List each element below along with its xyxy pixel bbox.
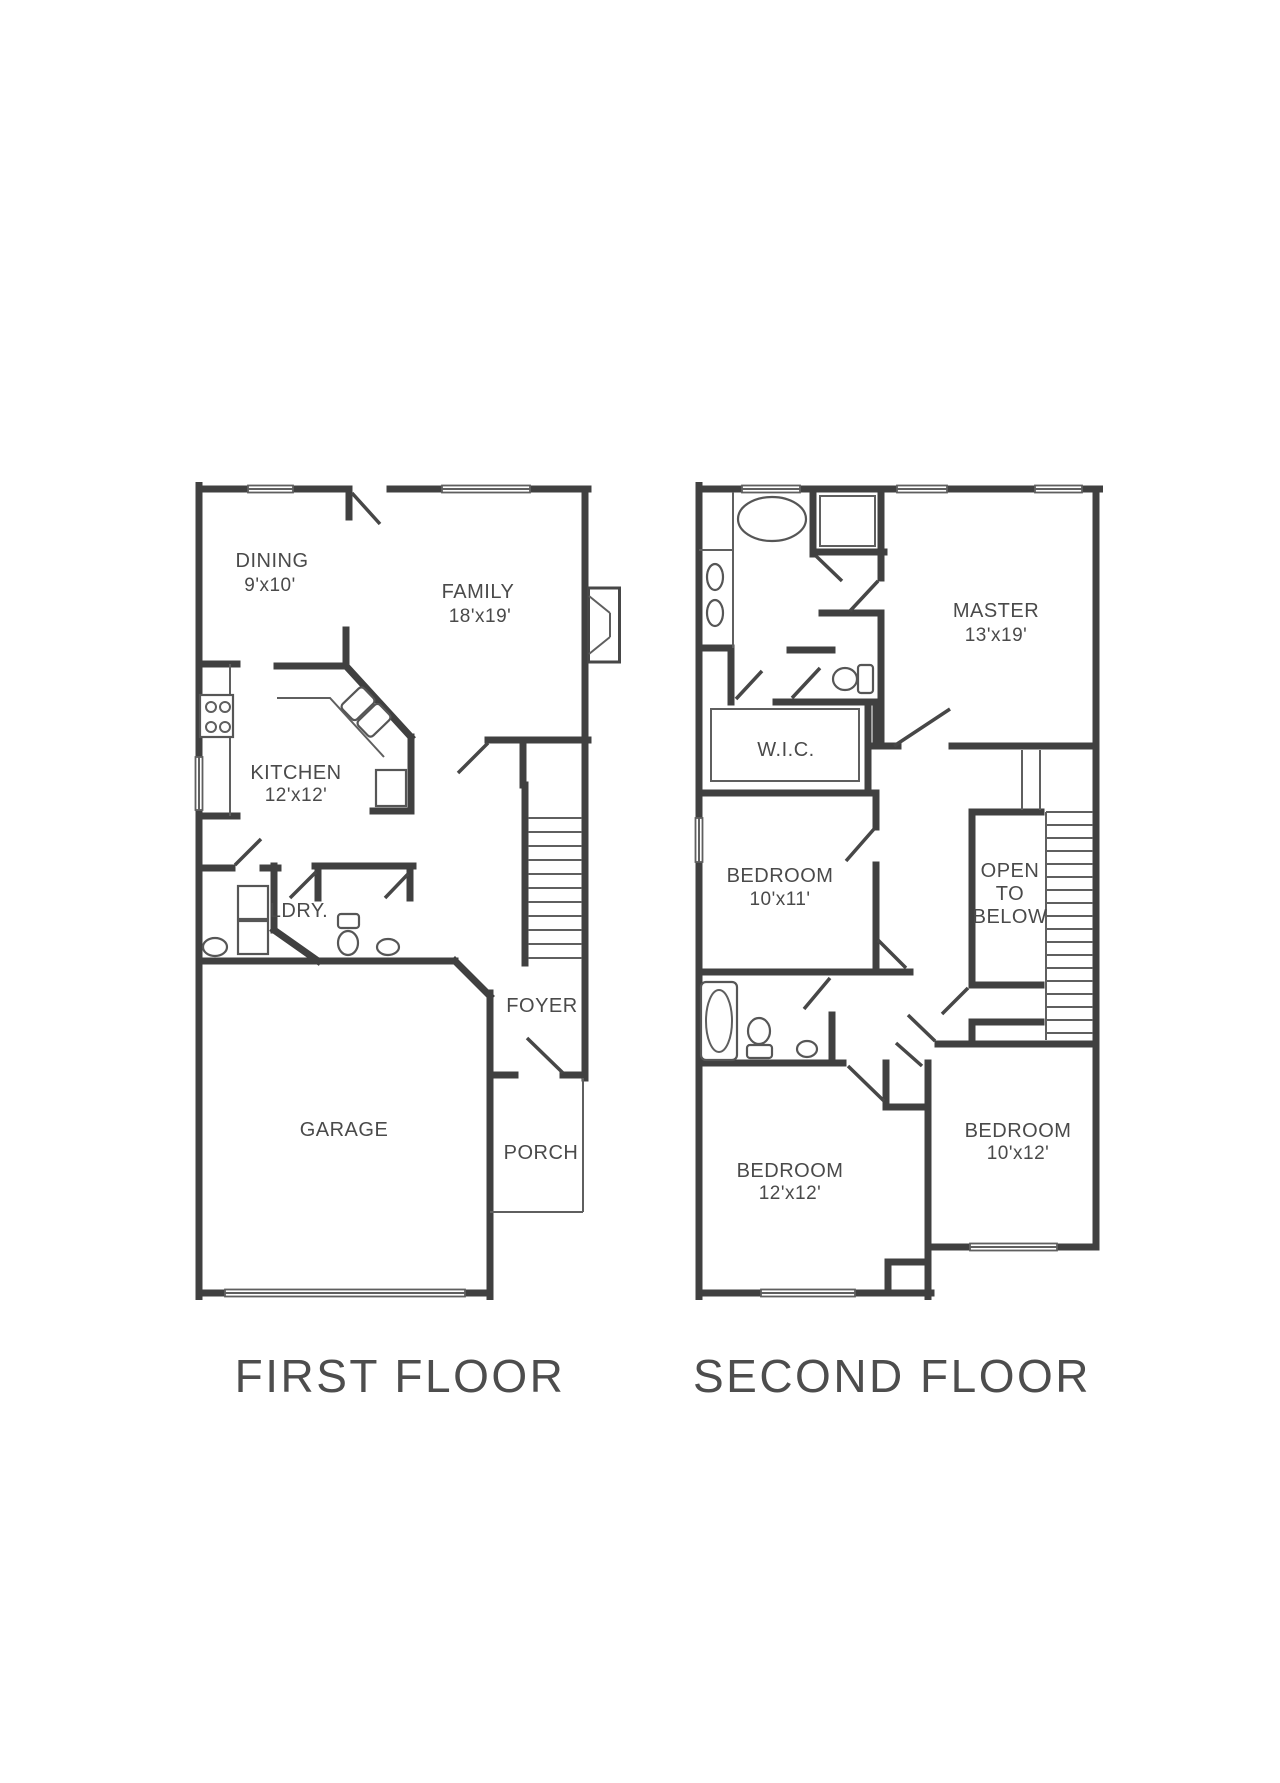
room-label-family: FAMILY bbox=[442, 581, 515, 603]
garage-door bbox=[225, 1290, 465, 1297]
toilet-tank bbox=[858, 665, 873, 693]
toilet-icon bbox=[748, 1018, 770, 1044]
room-label-open-to-below-2: TO bbox=[996, 883, 1024, 905]
stairs-second-floor bbox=[1022, 750, 1093, 1040]
stair-treads bbox=[1046, 812, 1093, 1033]
room-dims-bedroom-10x12: 10'x12' bbox=[987, 1143, 1050, 1164]
second-floor-plan: MASTER 13'x19' W.I.C. BEDROOM 10'x11' OP… bbox=[693, 486, 1100, 1403]
room-dims-family: 18'x19' bbox=[449, 606, 512, 627]
floor-plan-page: DINING 9'x10' FAMILY 18'x19' KITCHEN 12'… bbox=[0, 0, 1280, 1783]
room-label-wic: W.I.C. bbox=[757, 739, 814, 761]
master-bath bbox=[699, 492, 875, 693]
vanity-sink-icon bbox=[707, 564, 723, 590]
room-dims-bedroom-12x12: 12'x12' bbox=[759, 1183, 822, 1204]
bathroom-sink-icon bbox=[797, 1041, 817, 1057]
room-label-open-to-below-1: OPEN bbox=[981, 860, 1040, 882]
cabinet bbox=[376, 770, 406, 806]
stairs-first-floor bbox=[528, 818, 582, 958]
room-label-laundry: LDRY. bbox=[270, 900, 328, 922]
room-label-garage: GARAGE bbox=[300, 1119, 389, 1141]
utility-sink-icon bbox=[203, 938, 227, 956]
hall-bath bbox=[701, 982, 817, 1060]
kitchen-sink-icon bbox=[340, 686, 392, 738]
fireplace-icon bbox=[589, 588, 620, 662]
toilet-icon bbox=[338, 931, 358, 955]
room-label-kitchen: KITCHEN bbox=[250, 762, 341, 784]
room-label-dining: DINING bbox=[236, 550, 309, 572]
room-label-bedroom-12x12: BEDROOM bbox=[737, 1160, 844, 1182]
first-floor-title: FIRST FLOOR bbox=[235, 1350, 566, 1402]
room-label-master: MASTER bbox=[953, 600, 1039, 622]
washer-icon bbox=[238, 886, 268, 919]
powder-bath bbox=[338, 914, 399, 955]
toilet-tank bbox=[747, 1045, 772, 1058]
laundry-area bbox=[203, 886, 268, 956]
room-label-porch: PORCH bbox=[504, 1142, 579, 1164]
floor-plan-drawing: DINING 9'x10' FAMILY 18'x19' KITCHEN 12'… bbox=[0, 0, 1280, 1783]
toilet-icon bbox=[833, 668, 857, 690]
room-label-foyer: FOYER bbox=[506, 995, 577, 1017]
room-label-open-to-below-3: BELOW bbox=[973, 906, 1048, 928]
bathroom-sink-icon bbox=[377, 939, 399, 955]
second-floor-door-swings bbox=[736, 556, 968, 1101]
stair-railing bbox=[1022, 750, 1046, 1040]
second-floor-title: SECOND FLOOR bbox=[693, 1350, 1091, 1402]
toilet-tank bbox=[338, 914, 359, 928]
room-dims-dining: 9'x10' bbox=[244, 575, 295, 596]
bathtub-icon bbox=[738, 497, 806, 541]
first-floor-plan: DINING 9'x10' FAMILY 18'x19' KITCHEN 12'… bbox=[196, 486, 620, 1403]
room-dims-master: 13'x19' bbox=[965, 625, 1028, 646]
dryer-icon bbox=[238, 921, 268, 954]
room-dims-bedroom-10x11: 10'x11' bbox=[749, 889, 810, 910]
room-dims-kitchen: 12'x12' bbox=[265, 785, 328, 806]
room-label-bedroom-10x11: BEDROOM bbox=[727, 865, 834, 887]
room-label-bedroom-10x12: BEDROOM bbox=[965, 1120, 1072, 1142]
vanity-sink-icon bbox=[707, 600, 723, 626]
shower-icon bbox=[820, 496, 875, 546]
first-floor-windows bbox=[196, 486, 531, 811]
